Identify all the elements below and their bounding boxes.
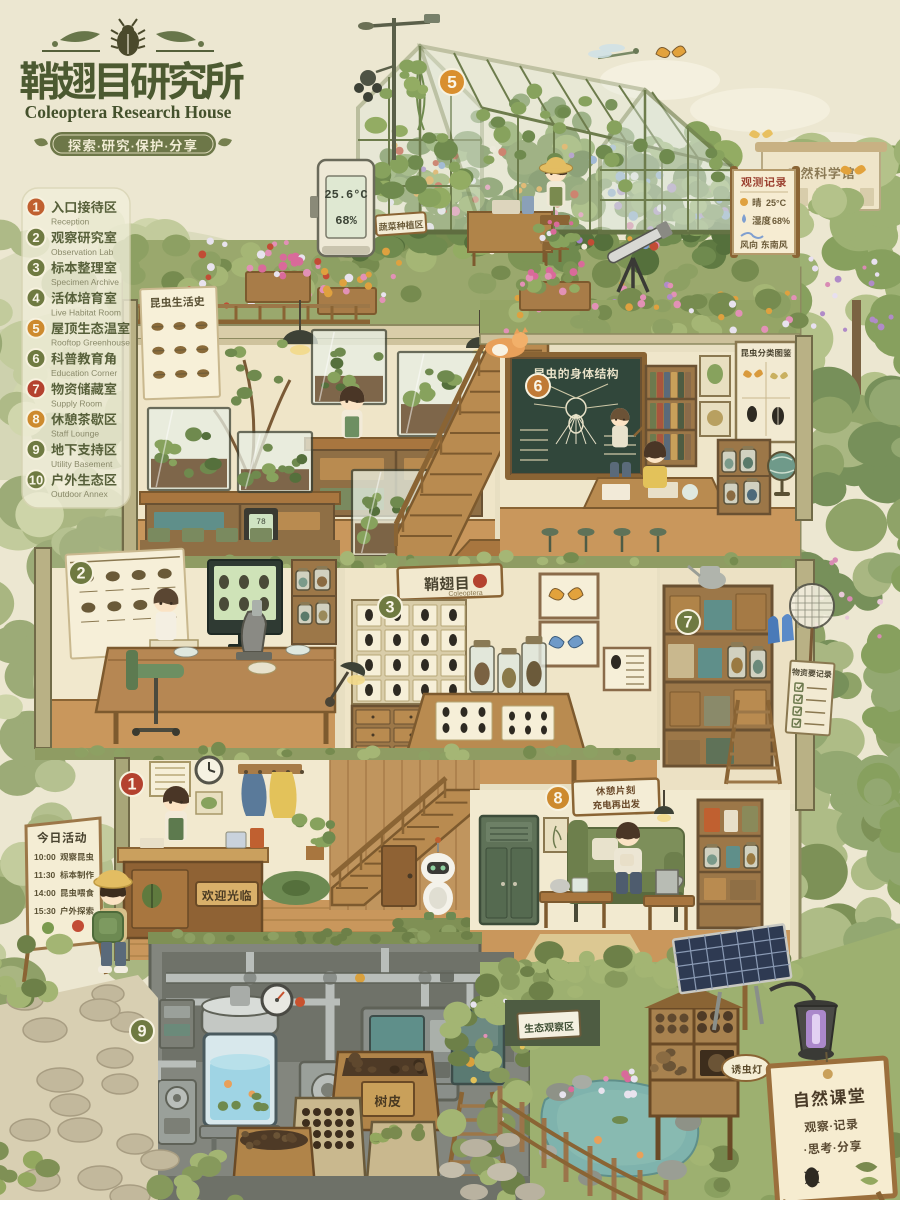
svg-text:Coleoptera Research House: Coleoptera Research House — [25, 102, 232, 122]
svg-text:2: 2 — [32, 230, 39, 245]
svg-text:Reception: Reception — [51, 217, 90, 227]
svg-text:Outdoor Annex: Outdoor Annex — [51, 489, 108, 499]
svg-text:9: 9 — [32, 442, 39, 457]
svg-text:5: 5 — [447, 72, 457, 92]
svg-text:2: 2 — [76, 565, 85, 583]
svg-text:1: 1 — [32, 200, 39, 215]
svg-text:Observation Lab: Observation Lab — [51, 247, 114, 257]
svg-text:3: 3 — [32, 260, 39, 275]
svg-text:7: 7 — [32, 381, 39, 396]
svg-text:Staff Lounge: Staff Lounge — [51, 429, 99, 439]
svg-text:3: 3 — [385, 599, 394, 617]
svg-text:10: 10 — [29, 472, 43, 487]
svg-text:14:00: 14:00 — [34, 888, 56, 898]
svg-text:8: 8 — [32, 412, 39, 427]
svg-text:Specimen Archive: Specimen Archive — [51, 277, 119, 287]
svg-text:·: · — [131, 140, 135, 154]
svg-text:1: 1 — [127, 776, 136, 794]
svg-text:6: 6 — [533, 378, 542, 396]
svg-text:Supply Room: Supply Room — [51, 398, 102, 408]
svg-text:78: 78 — [256, 518, 266, 527]
svg-text:5: 5 — [32, 321, 39, 336]
svg-text:Rooftop Greenhouse: Rooftop Greenhouse — [51, 338, 130, 348]
svg-text:4: 4 — [32, 290, 40, 305]
svg-text:7: 7 — [683, 614, 692, 632]
svg-text:Education Corner: Education Corner — [51, 368, 117, 378]
svg-text:Utility Basement: Utility Basement — [51, 459, 113, 469]
svg-text:6: 6 — [32, 351, 39, 366]
svg-text:11:30: 11:30 — [34, 870, 56, 880]
svg-text:10:00: 10:00 — [34, 852, 56, 862]
svg-text:8: 8 — [553, 790, 562, 808]
svg-text:25°C: 25°C — [766, 198, 787, 208]
svg-text:9: 9 — [137, 1023, 146, 1041]
svg-text:·: · — [165, 140, 169, 154]
svg-text:68%: 68% — [772, 216, 790, 226]
svg-text:·: · — [97, 140, 101, 154]
svg-text:Live Habitat Room: Live Habitat Room — [51, 307, 121, 317]
svg-text:25.6°C: 25.6°C — [324, 188, 367, 202]
svg-text:Coleoptera: Coleoptera — [448, 590, 483, 598]
svg-text:15:30: 15:30 — [34, 906, 56, 916]
svg-text:68%: 68% — [335, 214, 357, 228]
